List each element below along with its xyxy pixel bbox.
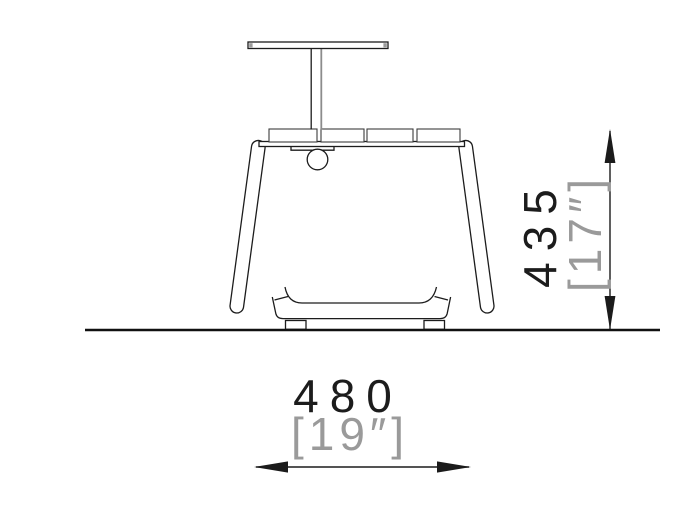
latch-knob	[307, 149, 328, 170]
arrow-up-icon	[605, 129, 616, 163]
height-dimension: 435 [17″]	[514, 129, 615, 330]
right-leg	[458, 140, 495, 314]
seat-slat	[417, 129, 460, 142]
table-top-left-cap	[249, 43, 252, 47]
width-dimension: 480 [19″]	[254, 370, 471, 473]
seat-slat	[321, 129, 364, 142]
table-top-right-cap	[383, 43, 386, 47]
table-post	[311, 49, 321, 130]
width-dim-inch-label: [19″]	[291, 408, 409, 460]
arrow-right-icon	[437, 461, 471, 472]
seat-slat	[367, 129, 413, 142]
technical-drawing: 435 [17″] 480 [19″]	[0, 0, 694, 525]
left-leg	[229, 140, 266, 314]
height-dim-inch-label: [17″]	[559, 174, 611, 292]
table-top	[248, 42, 388, 49]
right-foot	[424, 321, 445, 330]
drawing-canvas: 435 [17″] 480 [19″]	[0, 0, 694, 525]
tub-base	[272, 297, 450, 319]
seat-slat	[269, 129, 317, 142]
arrow-down-icon	[605, 296, 616, 330]
left-foot	[286, 321, 307, 330]
seat-slats	[269, 129, 460, 142]
arrow-left-icon	[254, 461, 288, 472]
